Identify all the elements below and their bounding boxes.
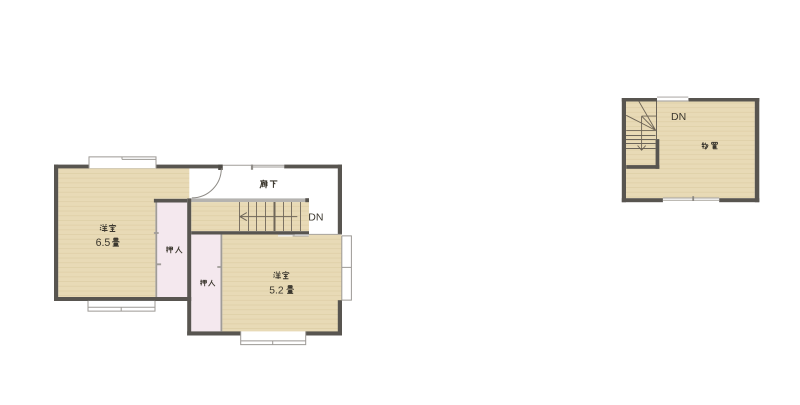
- svg-text:6.5: 6.5: [96, 237, 111, 249]
- svg-text:DN: DN: [308, 211, 323, 223]
- svg-text:DN: DN: [671, 111, 686, 123]
- svg-text:5.2: 5.2: [269, 285, 284, 296]
